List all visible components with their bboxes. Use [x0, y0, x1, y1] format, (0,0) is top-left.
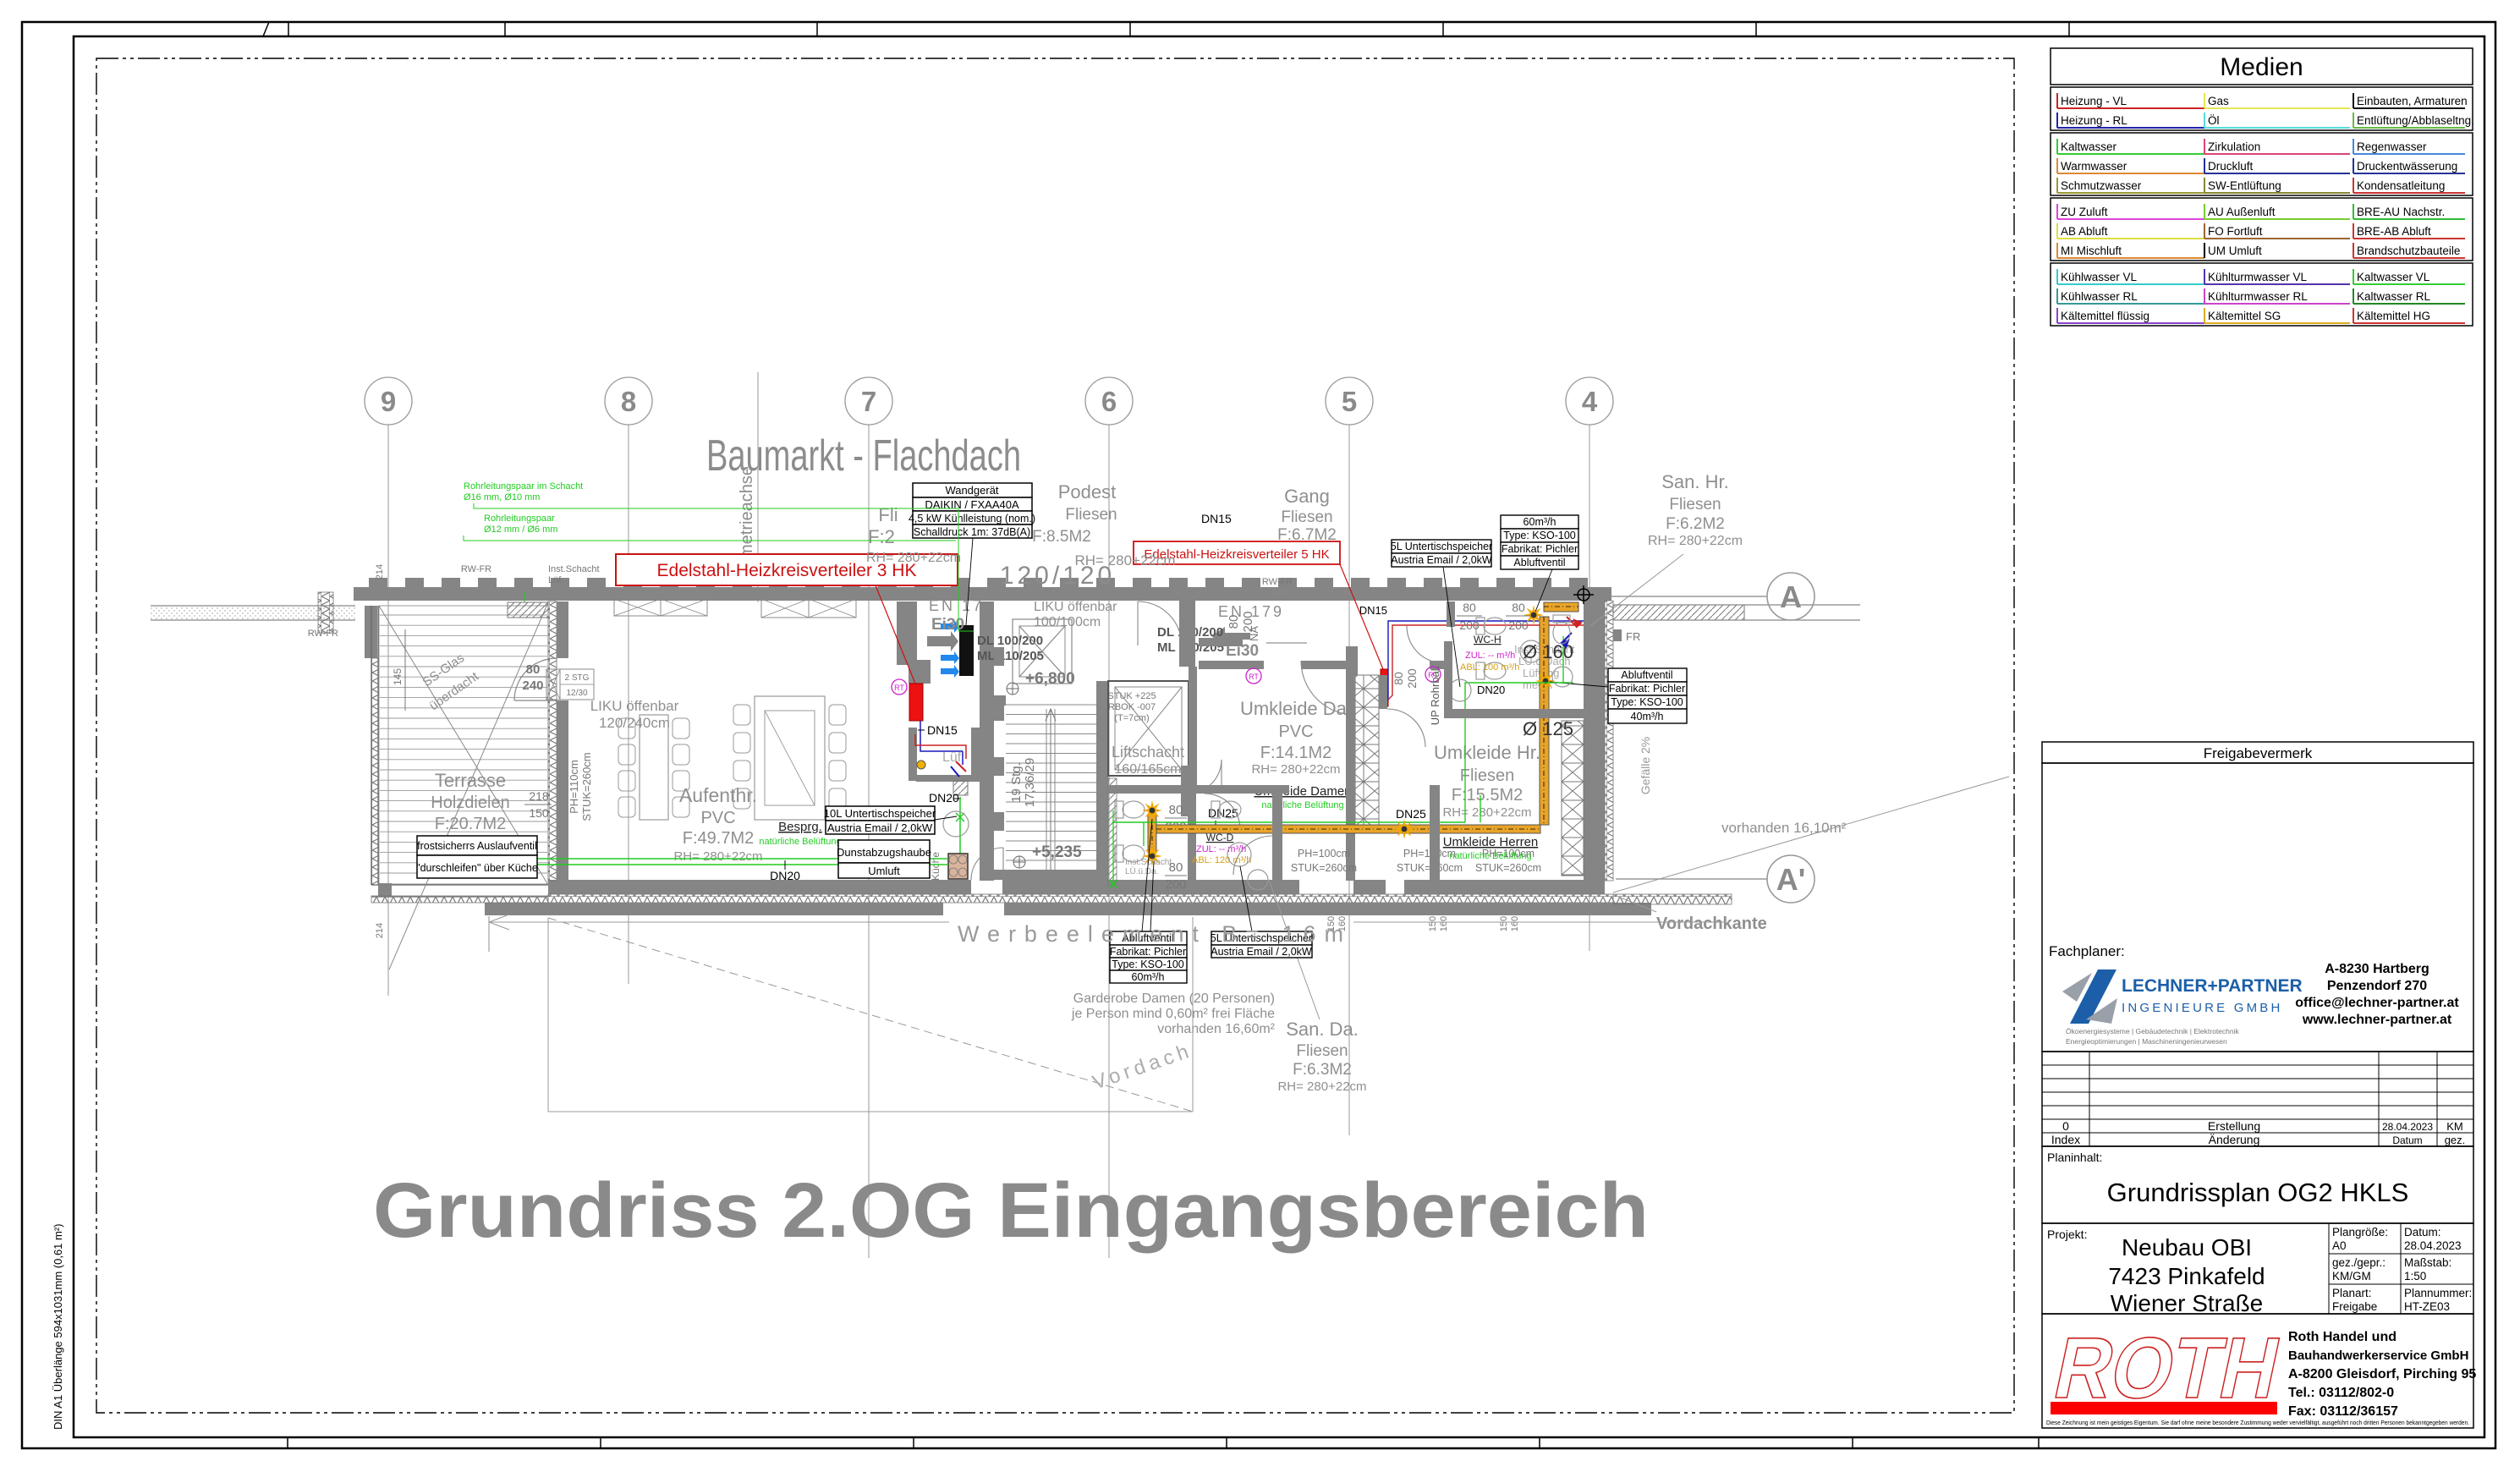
svg-text:Tel.: 03112/802-0: Tel.: 03112/802-0 — [2288, 1386, 2394, 1400]
svg-text:ABL: 120 m³/h: ABL: 120 m³/h — [1192, 855, 1251, 865]
svg-text:4: 4 — [1582, 386, 1598, 417]
svg-text:Schmutzwasser: Schmutzwasser — [2061, 179, 2142, 192]
svg-text:Index: Index — [2051, 1133, 2080, 1146]
svg-text:Lüf: Lüf — [942, 750, 962, 765]
svg-text:Energieoptimierungen | Maschin: Energieoptimierungen | Maschineningenieu… — [2066, 1037, 2227, 1046]
svg-text:Einbauten, Armaturen: Einbauten, Armaturen — [2357, 95, 2468, 107]
svg-text:RH= 280+22cm: RH= 280+22cm — [1648, 534, 1743, 548]
svg-text:160: 160 — [1439, 916, 1449, 931]
svg-text:Schalldruck 1m: 37dB(A): Schalldruck 1m: 37dB(A) — [914, 526, 1030, 538]
svg-text:Abluftventil: Abluftventil — [1621, 669, 1672, 681]
svg-text:40m³/h: 40m³/h — [1631, 711, 1664, 722]
svg-text:Datum:: Datum: — [2404, 1226, 2441, 1239]
svg-text:RT: RT — [1249, 673, 1259, 681]
svg-text:100/100cm: 100/100cm — [1034, 615, 1101, 629]
svg-text:Projekt:: Projekt: — [2047, 1228, 2087, 1241]
svg-text:FO Fortluft: FO Fortluft — [2208, 225, 2263, 238]
svg-text:STUK=260cm: STUK=260cm — [1291, 862, 1357, 874]
svg-text:DN15: DN15 — [927, 723, 958, 737]
svg-text:(T=7cm): (T=7cm) — [1114, 713, 1149, 723]
svg-text:F:6.3M2: F:6.3M2 — [1293, 1061, 1352, 1079]
svg-text:gez./gepr.:: gez./gepr.: — [2332, 1256, 2385, 1269]
svg-text:Medien: Medien — [2220, 53, 2303, 81]
svg-text:Grundriss 2.OG Eingangsbereich: Grundriss 2.OG Eingangsbereich — [373, 1167, 1649, 1254]
svg-text:Kältemittel flüssig: Kältemittel flüssig — [2061, 310, 2149, 322]
svg-text:17,36/29: 17,36/29 — [1023, 758, 1037, 807]
svg-text:Umluft: Umluft — [868, 865, 900, 877]
svg-text:28.04.2023: 28.04.2023 — [2382, 1121, 2433, 1133]
svg-text:80: 80 — [1169, 803, 1183, 817]
svg-text:214: 214 — [375, 564, 385, 579]
svg-text:EN 17: EN 17 — [929, 597, 984, 614]
svg-text:200: 200 — [1405, 668, 1419, 689]
svg-text:Fli: Fli — [878, 504, 898, 525]
svg-text:FR: FR — [1626, 630, 1640, 643]
svg-text:PH=100cm: PH=100cm — [1298, 848, 1350, 860]
svg-text:Kältemittel HG: Kältemittel HG — [2357, 310, 2430, 322]
svg-text:ZUL: -- m³/h: ZUL: -- m³/h — [1465, 651, 1515, 661]
svg-text:Wiener Straße: Wiener Straße — [2111, 1290, 2264, 1316]
svg-text:DN25: DN25 — [1396, 807, 1426, 821]
svg-text:Freigabevermerk: Freigabevermerk — [2204, 745, 2313, 761]
svg-text:SW-Entlüftung: SW-Entlüftung — [2208, 179, 2281, 192]
svg-text:5L Untertischspeicher: 5L Untertischspeicher — [1391, 541, 1492, 552]
svg-text:Bauhandwerkerservice GmbH: Bauhandwerkerservice GmbH — [2288, 1348, 2468, 1363]
svg-text:DN20: DN20 — [929, 791, 959, 805]
svg-text:vorhanden 16,60m²: vorhanden 16,60m² — [1157, 1022, 1275, 1036]
svg-text:KM: KM — [2446, 1120, 2463, 1133]
svg-text:160: 160 — [1510, 916, 1520, 931]
svg-text:60m³/h: 60m³/h — [1132, 971, 1165, 983]
svg-text:UP Rohrbal.: UP Rohrbal. — [1429, 666, 1441, 726]
svg-text:ABL: 100 m³/h: ABL: 100 m³/h — [1460, 662, 1519, 673]
svg-text:200: 200 — [1241, 611, 1255, 632]
svg-text:Diese Zeichnung ist mein geist: Diese Zeichnung ist mein geistiges Eigen… — [2046, 1419, 2469, 1426]
svg-text:AU Außenluft: AU Außenluft — [2208, 206, 2276, 218]
svg-text:Rohrleitungspaar im Schacht: Rohrleitungspaar im Schacht — [464, 481, 583, 492]
svg-text:Küche: Küche — [930, 852, 942, 881]
svg-text:BRE-AU Nachstr.: BRE-AU Nachstr. — [2357, 206, 2445, 218]
svg-text:F:15.5M2: F:15.5M2 — [1452, 786, 1523, 805]
svg-text:Terrasse: Terrasse — [435, 770, 506, 791]
svg-text:RW-FR: RW-FR — [461, 564, 491, 574]
svg-text:PVC: PVC — [1278, 722, 1313, 741]
svg-text:San. Hr.: San. Hr. — [1661, 471, 1728, 492]
svg-text:F:6.2M2: F:6.2M2 — [1666, 515, 1725, 533]
svg-text:Ø 125: Ø 125 — [1523, 718, 1573, 739]
svg-text:ROTH: ROTH — [2046, 1320, 2288, 1416]
svg-text:Erstellung: Erstellung — [2208, 1119, 2260, 1133]
svg-text:Maßstab:: Maßstab: — [2404, 1256, 2451, 1269]
svg-text:Gang: Gang — [1284, 486, 1330, 507]
svg-text:PVC: PVC — [700, 809, 735, 827]
svg-text:F:2: F:2 — [868, 526, 895, 547]
svg-text:DAIKIN / FXAA40A: DAIKIN / FXAA40A — [925, 498, 1019, 511]
svg-text:80: 80 — [526, 662, 541, 677]
svg-text:A-8230 Hartberg: A-8230 Hartberg — [2325, 962, 2429, 976]
svg-text:RW-FR: RW-FR — [308, 629, 338, 639]
svg-text:160/165cm: 160/165cm — [1114, 762, 1181, 777]
svg-text:ZUL: -- m³/h: ZUL: -- m³/h — [1196, 844, 1246, 854]
svg-text:Umkleide Hr.: Umkleide Hr. — [1434, 742, 1540, 763]
svg-text:DN15: DN15 — [1201, 512, 1232, 525]
svg-text:STUK=260cm: STUK=260cm — [580, 752, 593, 821]
svg-text:ZU Zuluft: ZU Zuluft — [2061, 206, 2108, 218]
svg-text:www.lechner-partner.at: www.lechner-partner.at — [2302, 1013, 2452, 1027]
svg-text:200: 200 — [1459, 618, 1480, 632]
svg-text:Neubau OBI: Neubau OBI — [2122, 1234, 2252, 1261]
svg-text:vorhanden 16,10m²: vorhanden 16,10m² — [1721, 820, 1847, 836]
svg-text:Druckluft: Druckluft — [2208, 160, 2254, 173]
svg-text:"durschleifen" über Küche: "durschleifen" über Küche — [416, 862, 538, 874]
svg-text:Grundrissplan OG2 HKLS: Grundrissplan OG2 HKLS — [2107, 1178, 2409, 1207]
svg-text:1:50: 1:50 — [2404, 1270, 2426, 1283]
svg-text:Kaltwasser: Kaltwasser — [2061, 140, 2117, 153]
svg-text:BRE-AB Abluft: BRE-AB Abluft — [2357, 225, 2431, 238]
svg-text:DN20: DN20 — [1477, 684, 1505, 696]
svg-text:DN15: DN15 — [1359, 604, 1387, 617]
svg-text:Datum: Datum — [2392, 1134, 2422, 1146]
svg-text:Fabrikat: Pichler: Fabrikat: Pichler — [1110, 946, 1186, 958]
svg-text:LIKU öffenbar: LIKU öffenbar — [1034, 600, 1117, 614]
svg-text:Regenwasser: Regenwasser — [2357, 140, 2427, 153]
svg-text:F:14.1M2: F:14.1M2 — [1260, 744, 1331, 762]
svg-text:A-8200 Gleisdorf, Pirching 95: A-8200 Gleisdorf, Pirching 95 — [2288, 1367, 2476, 1381]
svg-text:12/30: 12/30 — [566, 689, 587, 698]
svg-text:Roth Handel und: Roth Handel und — [2288, 1330, 2396, 1344]
svg-text:je Person mind 0,60m² frei Flä: je Person mind 0,60m² frei Fläche — [1071, 1007, 1275, 1021]
svg-text:150: 150 — [529, 806, 549, 820]
svg-text:Penzendorf 270: Penzendorf 270 — [2327, 979, 2427, 993]
svg-text:F:20.7M2: F:20.7M2 — [435, 815, 506, 833]
svg-text:+5,235: +5,235 — [1032, 843, 1082, 861]
svg-text:200: 200 — [1165, 877, 1186, 892]
svg-text:Fachplaner:: Fachplaner: — [2049, 943, 2125, 959]
svg-text:F:8.5M2: F:8.5M2 — [1032, 528, 1091, 546]
svg-text:A: A — [1780, 579, 1802, 614]
svg-text:80: 80 — [1392, 672, 1405, 685]
svg-text:Aufenthr.: Aufenthr. — [679, 784, 757, 806]
svg-text:Austria Email / 2,0kW: Austria Email / 2,0kW — [1211, 946, 1312, 958]
svg-text:80: 80 — [1227, 615, 1241, 629]
svg-text:Entlüftung/Abblaseltng.: Entlüftung/Abblaseltng. — [2357, 114, 2474, 127]
svg-text:Warmwasser: Warmwasser — [2061, 160, 2127, 173]
svg-text:STUK=260cm: STUK=260cm — [1475, 862, 1541, 874]
svg-text:Kaltwasser VL: Kaltwasser VL — [2357, 271, 2430, 283]
svg-text:Type: KSO-100: Type: KSO-100 — [1112, 958, 1184, 970]
svg-text:A0: A0 — [2332, 1239, 2347, 1252]
svg-text:2 STG: 2 STG — [565, 673, 590, 683]
svg-text:Dunstabzugshaube: Dunstabzugshaube — [837, 846, 931, 859]
svg-text:150: 150 — [1499, 916, 1509, 931]
svg-text:RH= 280+22cm: RH= 280+22cm — [1251, 762, 1340, 777]
svg-text:Kühlturmwasser VL: Kühlturmwasser VL — [2208, 271, 2308, 283]
svg-text:RH= 280+22cm: RH= 280+22cm — [1074, 552, 1175, 568]
svg-text:Austria Email / 2,0kW: Austria Email / 2,0kW — [827, 821, 933, 834]
svg-text:Lüf.: Lüf. — [548, 575, 563, 585]
svg-text:Heizung - VL: Heizung - VL — [2061, 95, 2127, 107]
svg-text:Werbeelement B= 16m: Werbeelement B= 16m — [958, 921, 1343, 947]
svg-text:Fliesen: Fliesen — [1065, 506, 1117, 524]
svg-text:MI Mischluft: MI Mischluft — [2061, 244, 2122, 257]
svg-text:214: 214 — [375, 923, 385, 938]
svg-text:60m³/h: 60m³/h — [1524, 516, 1556, 528]
svg-text:218: 218 — [529, 789, 549, 803]
svg-text:4,5 kW Kühlleistung (nom.): 4,5 kW Kühlleistung (nom.) — [909, 513, 1035, 525]
svg-text:Rohrleitungspaar: Rohrleitungspaar — [484, 514, 555, 524]
svg-text:7: 7 — [861, 386, 876, 417]
svg-text:Gas: Gas — [2208, 95, 2229, 107]
svg-text:Heizung - RL: Heizung - RL — [2061, 114, 2127, 127]
svg-text:Vordachkante: Vordachkante — [1656, 915, 1767, 933]
svg-text:Plannummer:: Plannummer: — [2404, 1287, 2472, 1299]
svg-text:19 Stg.: 19 Stg. — [1009, 762, 1024, 803]
svg-text:Garderobe Damen (20 Personen): Garderobe Damen (20 Personen) — [1073, 991, 1275, 1006]
svg-text:KM/GM: KM/GM — [2332, 1270, 2371, 1283]
svg-text:10L Untertischspeicher: 10L Untertischspeicher — [824, 807, 936, 820]
svg-text:F:49.7M2: F:49.7M2 — [683, 829, 754, 848]
svg-text:Inst.Schacht: Inst.Schacht — [548, 564, 600, 574]
svg-text:145: 145 — [392, 668, 404, 685]
svg-text:7423 Pinkafeld: 7423 Pinkafeld — [2108, 1263, 2265, 1289]
svg-text:Zirkulation: Zirkulation — [2208, 140, 2260, 153]
svg-text:Kühlturmwasser RL: Kühlturmwasser RL — [2208, 290, 2308, 303]
svg-text:9: 9 — [381, 386, 396, 417]
svg-text:RH= 280+22cm: RH= 280+22cm — [673, 849, 762, 864]
svg-text:Austria Email / 2,0kW: Austria Email / 2,0kW — [1391, 554, 1492, 566]
svg-text:Freigabe: Freigabe — [2332, 1300, 2377, 1313]
svg-text:RH= 280+22cm: RH= 280+22cm — [1442, 805, 1531, 820]
svg-text:DIN A1 Überlänge 594x1031mm (0: DIN A1 Überlänge 594x1031mm (0,61 m²) — [52, 1223, 64, 1430]
svg-text:Fabrikat: Pichler: Fabrikat: Pichler — [1502, 543, 1578, 555]
svg-text:RW-FR: RW-FR — [1262, 577, 1293, 587]
svg-text:Abluftventil: Abluftventil — [1513, 557, 1565, 568]
svg-text:Fliesen: Fliesen — [1669, 496, 1721, 514]
svg-text:Besprg.: Besprg. — [778, 820, 822, 834]
svg-text:80: 80 — [1463, 601, 1476, 614]
svg-text:Podest: Podest — [1058, 481, 1117, 503]
svg-text:Umkleide Da.: Umkleide Da. — [1240, 698, 1352, 719]
svg-text:80: 80 — [1512, 601, 1525, 614]
svg-text:120/240cm: 120/240cm — [599, 715, 670, 731]
svg-text:200: 200 — [1508, 618, 1529, 632]
svg-text:150: 150 — [1428, 916, 1438, 931]
svg-text:Plangröße:: Plangröße: — [2332, 1226, 2388, 1239]
svg-text:0: 0 — [2062, 1119, 2069, 1133]
svg-text:San. Da.: San. Da. — [1286, 1019, 1359, 1040]
svg-text:Kühlwasser RL: Kühlwasser RL — [2061, 290, 2138, 303]
svg-text:Änderung: Änderung — [2209, 1133, 2260, 1146]
svg-text:gez.: gez. — [2445, 1134, 2466, 1146]
svg-text:DN20: DN20 — [770, 869, 800, 882]
svg-text:PH=100cm: PH=100cm — [1482, 848, 1535, 860]
svg-text:Fax: 03112/36157: Fax: 03112/36157 — [2288, 1404, 2398, 1419]
svg-text:Type: KSO-100: Type: KSO-100 — [1503, 530, 1576, 541]
svg-text:PH=110cm: PH=110cm — [568, 760, 580, 814]
svg-text:Brandschutzbauteile: Brandschutzbauteile — [2357, 244, 2460, 257]
svg-text:Kühlwasser VL: Kühlwasser VL — [2061, 271, 2138, 283]
svg-text:Fliesen: Fliesen — [1296, 1042, 1348, 1060]
svg-text:Planinhalt:: Planinhalt: — [2047, 1151, 2102, 1164]
svg-text:Öl: Öl — [2208, 114, 2220, 127]
svg-text:Planart:: Planart: — [2332, 1287, 2372, 1299]
svg-text:+6,800: +6,800 — [1025, 670, 1075, 688]
svg-text:Druckentwässerung: Druckentwässerung — [2357, 160, 2457, 173]
svg-text:Type: KSO-100: Type: KSO-100 — [1611, 696, 1683, 708]
svg-text:Ökoenergiesysteme | Gebäudetec: Ökoenergiesysteme | Gebäudetechnik | Ele… — [2066, 1027, 2239, 1035]
svg-text:RH= 280+22cm: RH= 280+22cm — [866, 551, 961, 565]
svg-text:Fliesen: Fliesen — [1281, 508, 1332, 526]
svg-text:LECHNER+PARTNER: LECHNER+PARTNER — [2122, 976, 2303, 996]
svg-text:28.04.2023: 28.04.2023 — [2404, 1239, 2462, 1252]
svg-text:UM Umluft: UM Umluft — [2208, 244, 2262, 257]
svg-text:office@lechner-partner.at: office@lechner-partner.at — [2295, 996, 2459, 1010]
svg-text:A': A' — [1776, 862, 1806, 897]
svg-text:HT-ZE03: HT-ZE03 — [2404, 1300, 2450, 1313]
svg-text:LIKU öffenbar: LIKU öffenbar — [590, 698, 679, 714]
svg-text:Ø16 mm, Ø10 mm: Ø16 mm, Ø10 mm — [464, 492, 540, 503]
svg-text:Liftschacht: Liftschacht — [1112, 744, 1184, 761]
svg-text:Fabrikat: Pichler: Fabrikat: Pichler — [1609, 683, 1685, 695]
svg-text:RT: RT — [894, 684, 904, 692]
svg-text:RH= 280+22cm: RH= 280+22cm — [1277, 1079, 1366, 1094]
svg-text:AB Abluft: AB Abluft — [2061, 225, 2108, 238]
svg-text:Ø12 mm / Ø6 mm: Ø12 mm / Ø6 mm — [484, 525, 557, 535]
svg-text:WC-H: WC-H — [1474, 634, 1502, 645]
svg-text:frostsicherrs Auslaufventil: frostsicherrs Auslaufventil — [417, 840, 537, 852]
svg-text:6: 6 — [1101, 386, 1117, 417]
svg-text:Holzdielen: Holzdielen — [431, 794, 509, 812]
svg-text:Gefälle 2%: Gefälle 2% — [1639, 737, 1652, 794]
svg-text:INGENIEURE GMBH: INGENIEURE GMBH — [2122, 1001, 2283, 1015]
svg-text:Kältemittel SG: Kältemittel SG — [2208, 310, 2281, 322]
svg-text:Kaltwasser RL: Kaltwasser RL — [2357, 290, 2431, 303]
svg-text:240: 240 — [522, 678, 543, 693]
svg-text:5: 5 — [1342, 386, 1357, 417]
svg-text:natürliche Belüftung: natürliche Belüftung — [759, 837, 841, 847]
svg-text:Kondensatleitung: Kondensatleitung — [2357, 179, 2445, 192]
svg-text:Wandgerät: Wandgerät — [945, 484, 998, 497]
svg-text:Fliesen: Fliesen — [1460, 766, 1514, 785]
svg-text:8: 8 — [621, 386, 636, 417]
